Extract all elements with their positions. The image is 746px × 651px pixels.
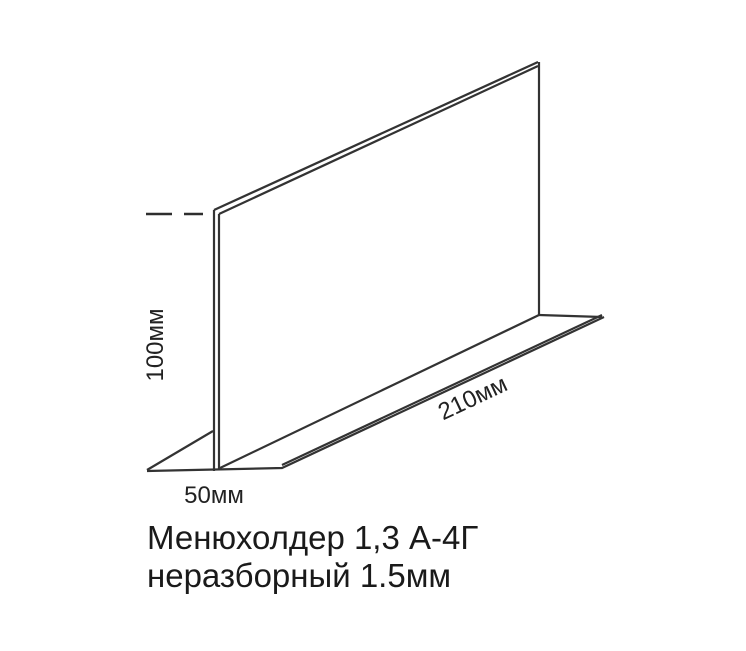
product-title-line2: неразборный 1.5мм [147, 557, 451, 594]
height-dimension-label: 100мм [142, 308, 169, 381]
menu-holder-line-drawing: 100мм 210мм 50мм Менюхолдер 1,3 А-4Г нер… [0, 0, 746, 651]
product-diagram-canvas: 100мм 210мм 50мм Менюхолдер 1,3 А-4Г нер… [0, 0, 746, 651]
depth-dimension-label: 50мм [184, 482, 244, 509]
product-title-line1: Менюхолдер 1,3 А-4Г [147, 519, 478, 556]
base-left-back-edge [147, 431, 213, 470]
